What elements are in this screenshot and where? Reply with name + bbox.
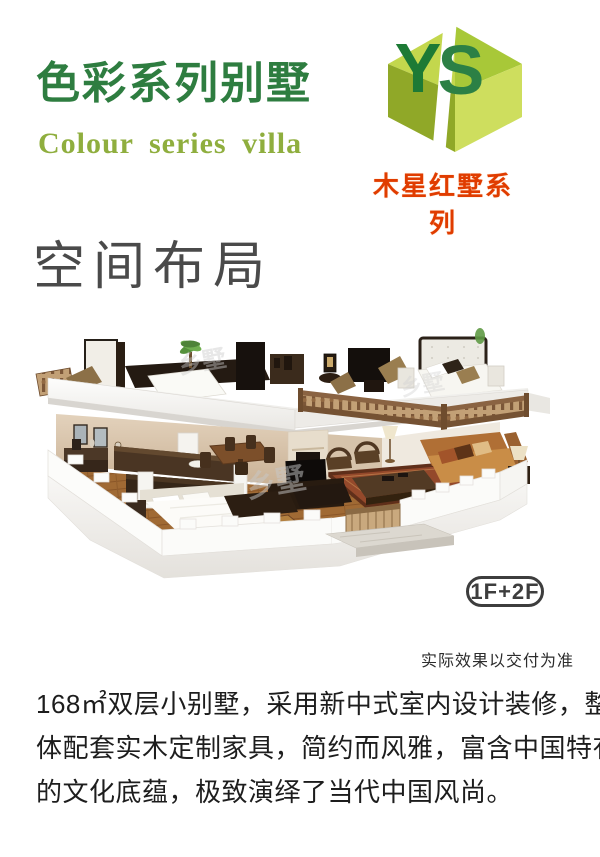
logo-letter-s: S xyxy=(438,31,485,109)
page-title-english: Colour series villa xyxy=(38,127,302,161)
description-line: 体配套实木定制家具，简约而风雅，富含中国特有 xyxy=(36,726,596,770)
villa-figure: 乡墅 乡墅 乡墅 1F+2F 实际效果以交付为准 xyxy=(30,322,570,682)
section-heading: 空间布局 xyxy=(33,224,273,299)
poster-page: 色彩系列别墅 Colour series villa Y S 木星红墅系列 空间… xyxy=(0,0,600,857)
logo-letter-y: Y xyxy=(395,29,442,107)
series-label: 木星红墅系列 xyxy=(366,166,520,240)
ys-cube-logo-icon: Y S xyxy=(380,22,530,154)
description-paragraph: 168㎡双层小别墅，采用新中式室内设计装修，整 体配套实木定制家具，简约而风雅，… xyxy=(36,682,596,814)
ys-logo: Y S 木星红墅系列 xyxy=(378,22,532,240)
floors-badge: 1F+2F xyxy=(466,576,544,607)
wall-frame xyxy=(94,428,107,447)
disclaimer-text: 实际效果以交付为准 xyxy=(421,647,574,671)
page-title-chinese: 色彩系列别墅 xyxy=(36,60,312,108)
description-line: 168㎡双层小别墅，采用新中式室内设计装修，整 xyxy=(36,682,596,726)
description-line: 的文化底蕴，极致演绎了当代中国风尚。 xyxy=(36,770,596,814)
